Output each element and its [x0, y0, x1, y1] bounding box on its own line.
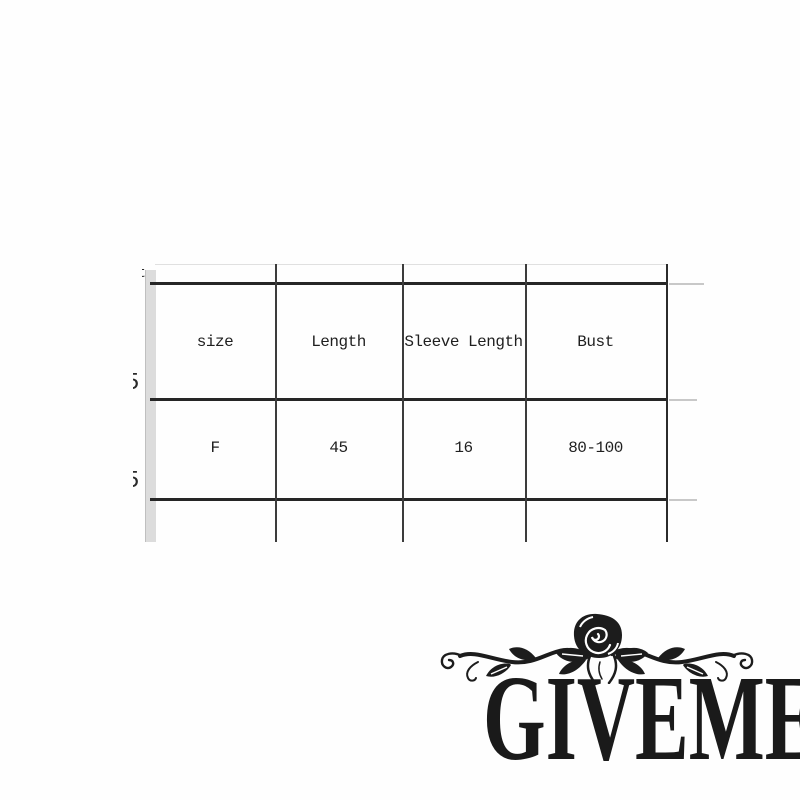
- product-image-canvas: t 5 5 size Length Sleeve Length Bust F 4…: [0, 0, 800, 800]
- column-header-size: size: [155, 285, 275, 398]
- brand-name: GIVEME5: [483, 658, 735, 780]
- column-header-sleeve-length: Sleeve Length: [402, 285, 525, 398]
- cell-size-value: F: [155, 398, 275, 498]
- clipped-char: 5: [133, 468, 144, 492]
- table-border-right: [666, 264, 668, 542]
- size-chart-grid: size Length Sleeve Length Bust F 45 16 8…: [155, 285, 666, 498]
- faint-gridline-top: [155, 264, 667, 265]
- cell-length-value: 45: [275, 398, 402, 498]
- column-header-bust: Bust: [525, 285, 666, 398]
- gridline-stub: [669, 399, 697, 401]
- cell-sleeve-value: 16: [402, 398, 525, 498]
- table-border-bottom: [150, 498, 668, 501]
- brand-watermark: GIVEME5: [418, 608, 800, 778]
- clipped-char: t: [142, 265, 150, 280]
- clipped-char: 5: [133, 370, 144, 394]
- cell-bust-value: 80-100: [525, 398, 666, 498]
- column-header-length: Length: [275, 285, 402, 398]
- gridline-stub: [669, 499, 697, 501]
- gridline-stub: [669, 283, 704, 285]
